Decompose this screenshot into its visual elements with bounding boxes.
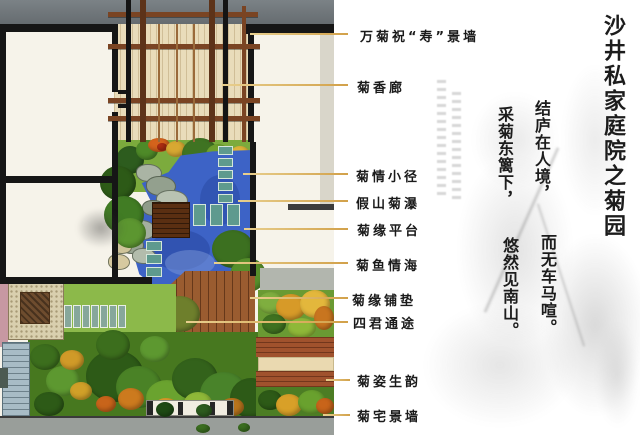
wall [0, 277, 152, 284]
flower-blob [96, 396, 116, 412]
pergola-batten [158, 24, 160, 142]
stepping-pad [218, 194, 233, 203]
flower-blob [314, 306, 334, 330]
pink-paving-strip [0, 283, 8, 347]
flower-blob [316, 398, 334, 414]
flower-blob [118, 388, 144, 410]
page-title: 沙井私家庭院之菊园 [596, 14, 628, 239]
stepping-pad [146, 254, 162, 264]
leader-line [222, 84, 348, 86]
leader-line [243, 173, 348, 175]
tree-shadow [76, 208, 126, 248]
wall [0, 176, 118, 183]
pergola-batten [193, 24, 195, 142]
stepping-pad [146, 241, 162, 251]
stepping-pad [193, 204, 206, 226]
callout-label: 菊缘铺垫 [352, 290, 416, 309]
pergola-post [126, 0, 131, 142]
site-plan [0, 0, 334, 435]
plant-blob [196, 424, 210, 433]
callout-label: 菊宅景墙 [357, 406, 421, 425]
concrete-pad [260, 268, 334, 292]
tree-canopy [100, 166, 136, 200]
right-wall-line [288, 204, 334, 210]
leader-line [186, 321, 348, 323]
plant-blob [30, 344, 60, 370]
leader-line [214, 262, 348, 264]
plant-blob [156, 402, 174, 417]
planter-box [82, 305, 90, 328]
flower-blob [60, 350, 84, 370]
stepping-pad [218, 158, 233, 167]
wall [112, 112, 118, 180]
presentation-page: 万菊祝“寿”景墙 菊香廊 菊情小径 假山菊瀑 菊缘平台 菊鱼情海 菊缘铺垫 四君… [0, 0, 640, 435]
wall-stub [118, 90, 126, 94]
pergola-post [140, 0, 146, 142]
gate-post [147, 401, 153, 415]
callout-label: 菊缘平台 [357, 220, 421, 239]
right-gray-strip [320, 33, 334, 204]
planter-box [64, 305, 72, 328]
stepping-pad [218, 170, 233, 179]
pergola-post [223, 0, 228, 142]
wall-stub [118, 104, 126, 108]
wood-platform [152, 202, 190, 238]
wall [250, 142, 256, 276]
stepping-pad [210, 204, 223, 226]
flower-blob [70, 382, 92, 400]
stepping-pad [146, 267, 162, 277]
mosaic-feature [20, 292, 50, 324]
stepping-pad [218, 146, 233, 155]
plant-blob [34, 392, 64, 416]
planter-box [109, 305, 117, 328]
ink-seal-text [452, 92, 461, 202]
wall [0, 24, 118, 32]
leader-line [250, 33, 348, 35]
brick-path [256, 371, 334, 387]
planter-box [100, 305, 108, 328]
callout-label: 万菊祝“寿”景墙 [360, 26, 479, 45]
callout-label: 假山菊瀑 [356, 193, 420, 212]
beige-path [258, 357, 334, 371]
ink-painting-watermark [595, 320, 640, 430]
leader-line [244, 228, 348, 230]
callout-label: 四君通途 [353, 313, 417, 332]
ink-seal-text [437, 80, 446, 200]
wall [112, 32, 118, 92]
callout-label: 菊姿生韵 [357, 371, 421, 390]
gate-post [178, 402, 183, 415]
poem-column: 而无车马喧。 [535, 234, 559, 336]
callout-label: 菊鱼情海 [356, 255, 420, 274]
tree-canopy [96, 330, 130, 360]
brick-path [256, 337, 334, 357]
bottom-wall [0, 416, 334, 435]
pergola-post [242, 6, 246, 142]
stepping-pad [227, 204, 240, 226]
gate-post [227, 401, 233, 415]
pergola-post [209, 0, 215, 142]
pergola-batten [176, 24, 178, 142]
leader-line [250, 297, 348, 299]
poem-column: 悠然见南山。 [497, 237, 521, 339]
plant-blob [140, 336, 170, 362]
stepping-pad [218, 182, 233, 191]
wall [0, 24, 6, 284]
leader-line [323, 414, 350, 416]
planter-box [73, 305, 81, 328]
plant-blob [262, 314, 286, 334]
leader-line [326, 379, 350, 381]
poem-column: 采菊东篱下， [492, 106, 516, 208]
side-block [0, 368, 8, 388]
plant-blob [238, 423, 250, 432]
poem-column: 结庐在人境， [529, 100, 553, 202]
planter-box [91, 305, 99, 328]
callout-label: 菊情小径 [356, 166, 420, 185]
planter-box [118, 305, 126, 328]
leader-line [238, 200, 348, 202]
plant-blob [196, 404, 212, 417]
callout-label: 菊香廊 [357, 77, 405, 96]
